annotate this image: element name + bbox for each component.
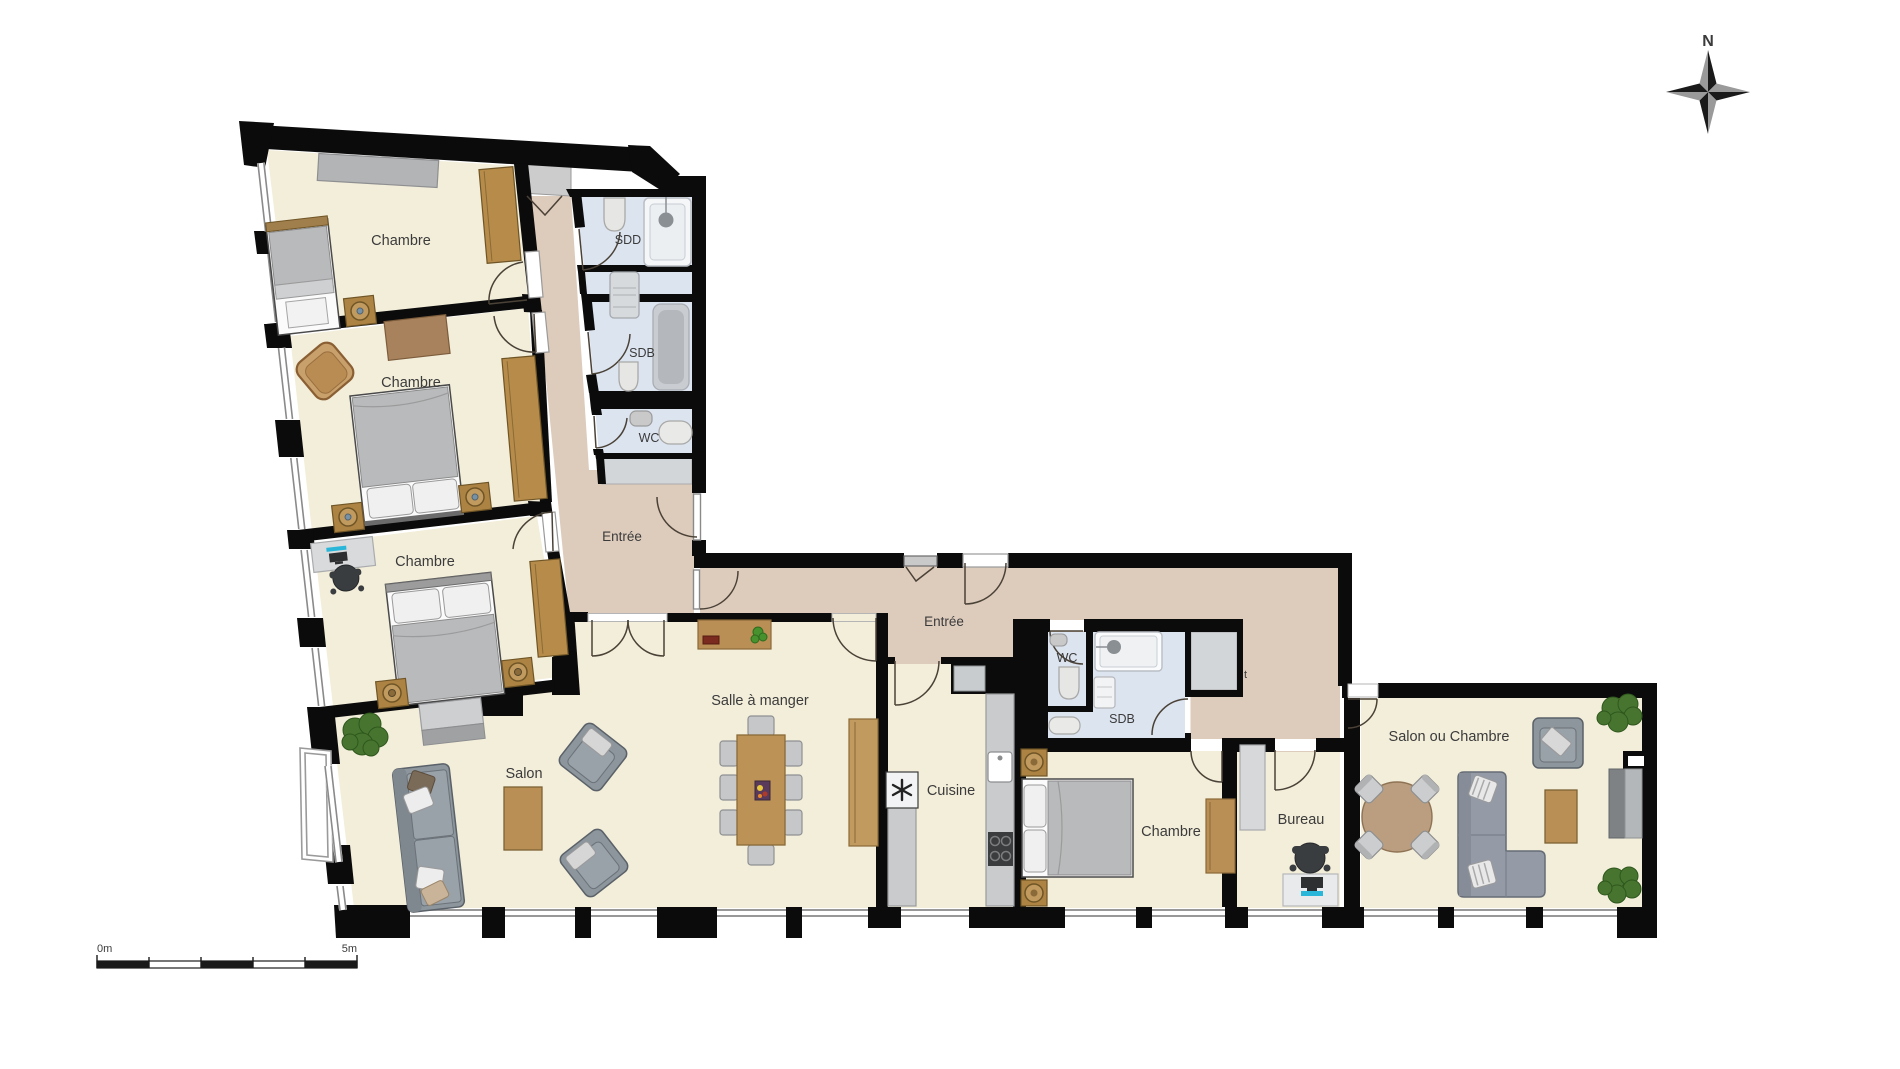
svg-text:t: t [1244,669,1247,681]
svg-text:WC: WC [1057,651,1078,665]
svg-text:Chambre: Chambre [395,554,455,570]
svg-text:Cuisine: Cuisine [927,783,975,799]
svg-text:Bureau: Bureau [1278,812,1325,828]
svg-text:Chambre: Chambre [381,375,441,391]
svg-text:Entrée: Entrée [924,614,964,629]
svg-text:SDD: SDD [615,233,641,247]
svg-text:SDB: SDB [629,346,655,360]
svg-text:Salle à manger: Salle à manger [711,693,809,709]
svg-text:SDB: SDB [1109,712,1135,726]
svg-text:0m: 0m [97,943,112,955]
svg-text:Salon ou Chambre: Salon ou Chambre [1389,729,1510,745]
svg-text:Chambre: Chambre [1141,824,1201,840]
svg-text:Entrée: Entrée [602,529,642,544]
svg-text:N: N [1702,33,1714,50]
svg-text:5m: 5m [342,943,357,955]
svg-text:WC: WC [639,431,660,445]
svg-text:Chambre: Chambre [371,233,431,249]
svg-text:Salon: Salon [505,766,542,782]
